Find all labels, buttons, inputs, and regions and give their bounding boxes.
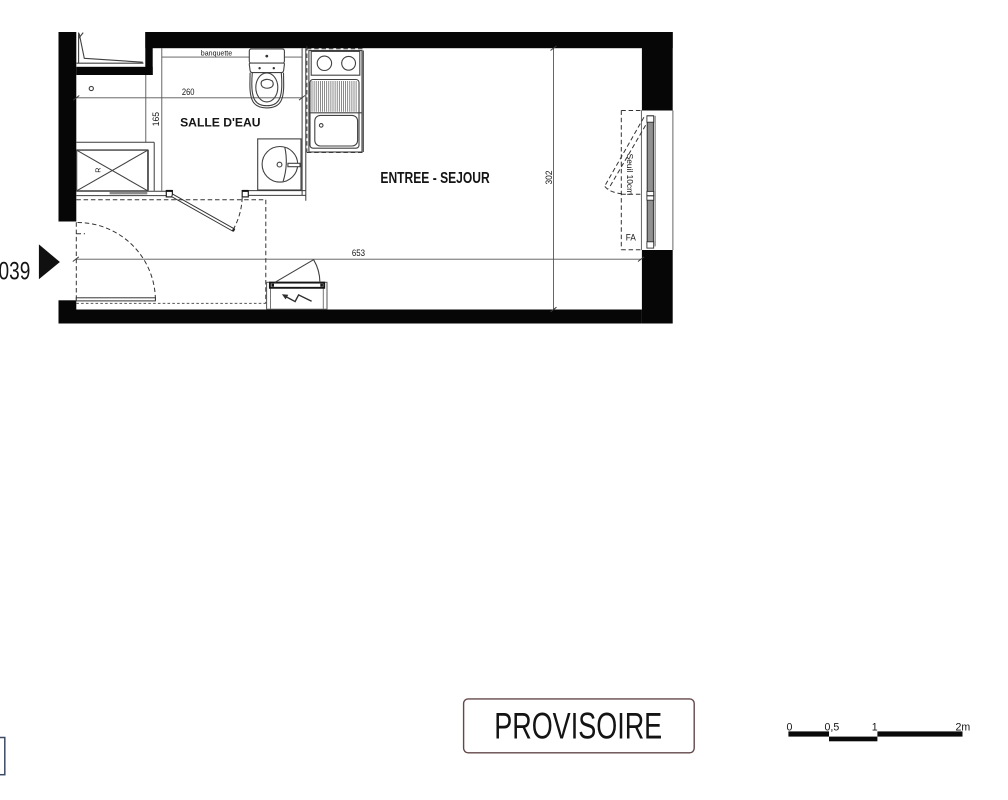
svg-text:PROVISOIRE: PROVISOIRE — [494, 705, 662, 746]
svg-text:0,5: 0,5 — [825, 721, 840, 733]
svg-text:2m: 2m — [956, 721, 971, 733]
svg-text:260: 260 — [182, 87, 195, 97]
svg-text:SALLE D'EAU: SALLE D'EAU — [180, 117, 260, 130]
svg-text:banquette: banquette — [201, 48, 232, 57]
svg-text:653: 653 — [352, 248, 365, 258]
svg-text:R: R — [94, 168, 103, 173]
svg-text:ENTREE - SEJOUR: ENTREE - SEJOUR — [380, 170, 490, 187]
svg-text:FA: FA — [626, 233, 636, 243]
svg-text:0: 0 — [787, 721, 793, 733]
svg-text:302: 302 — [544, 170, 554, 184]
svg-text:039: 039 — [0, 258, 30, 286]
svg-text:Seuil 10cm: Seuil 10cm — [625, 154, 634, 196]
svg-text:1: 1 — [872, 721, 878, 733]
svg-text:165: 165 — [151, 112, 161, 126]
